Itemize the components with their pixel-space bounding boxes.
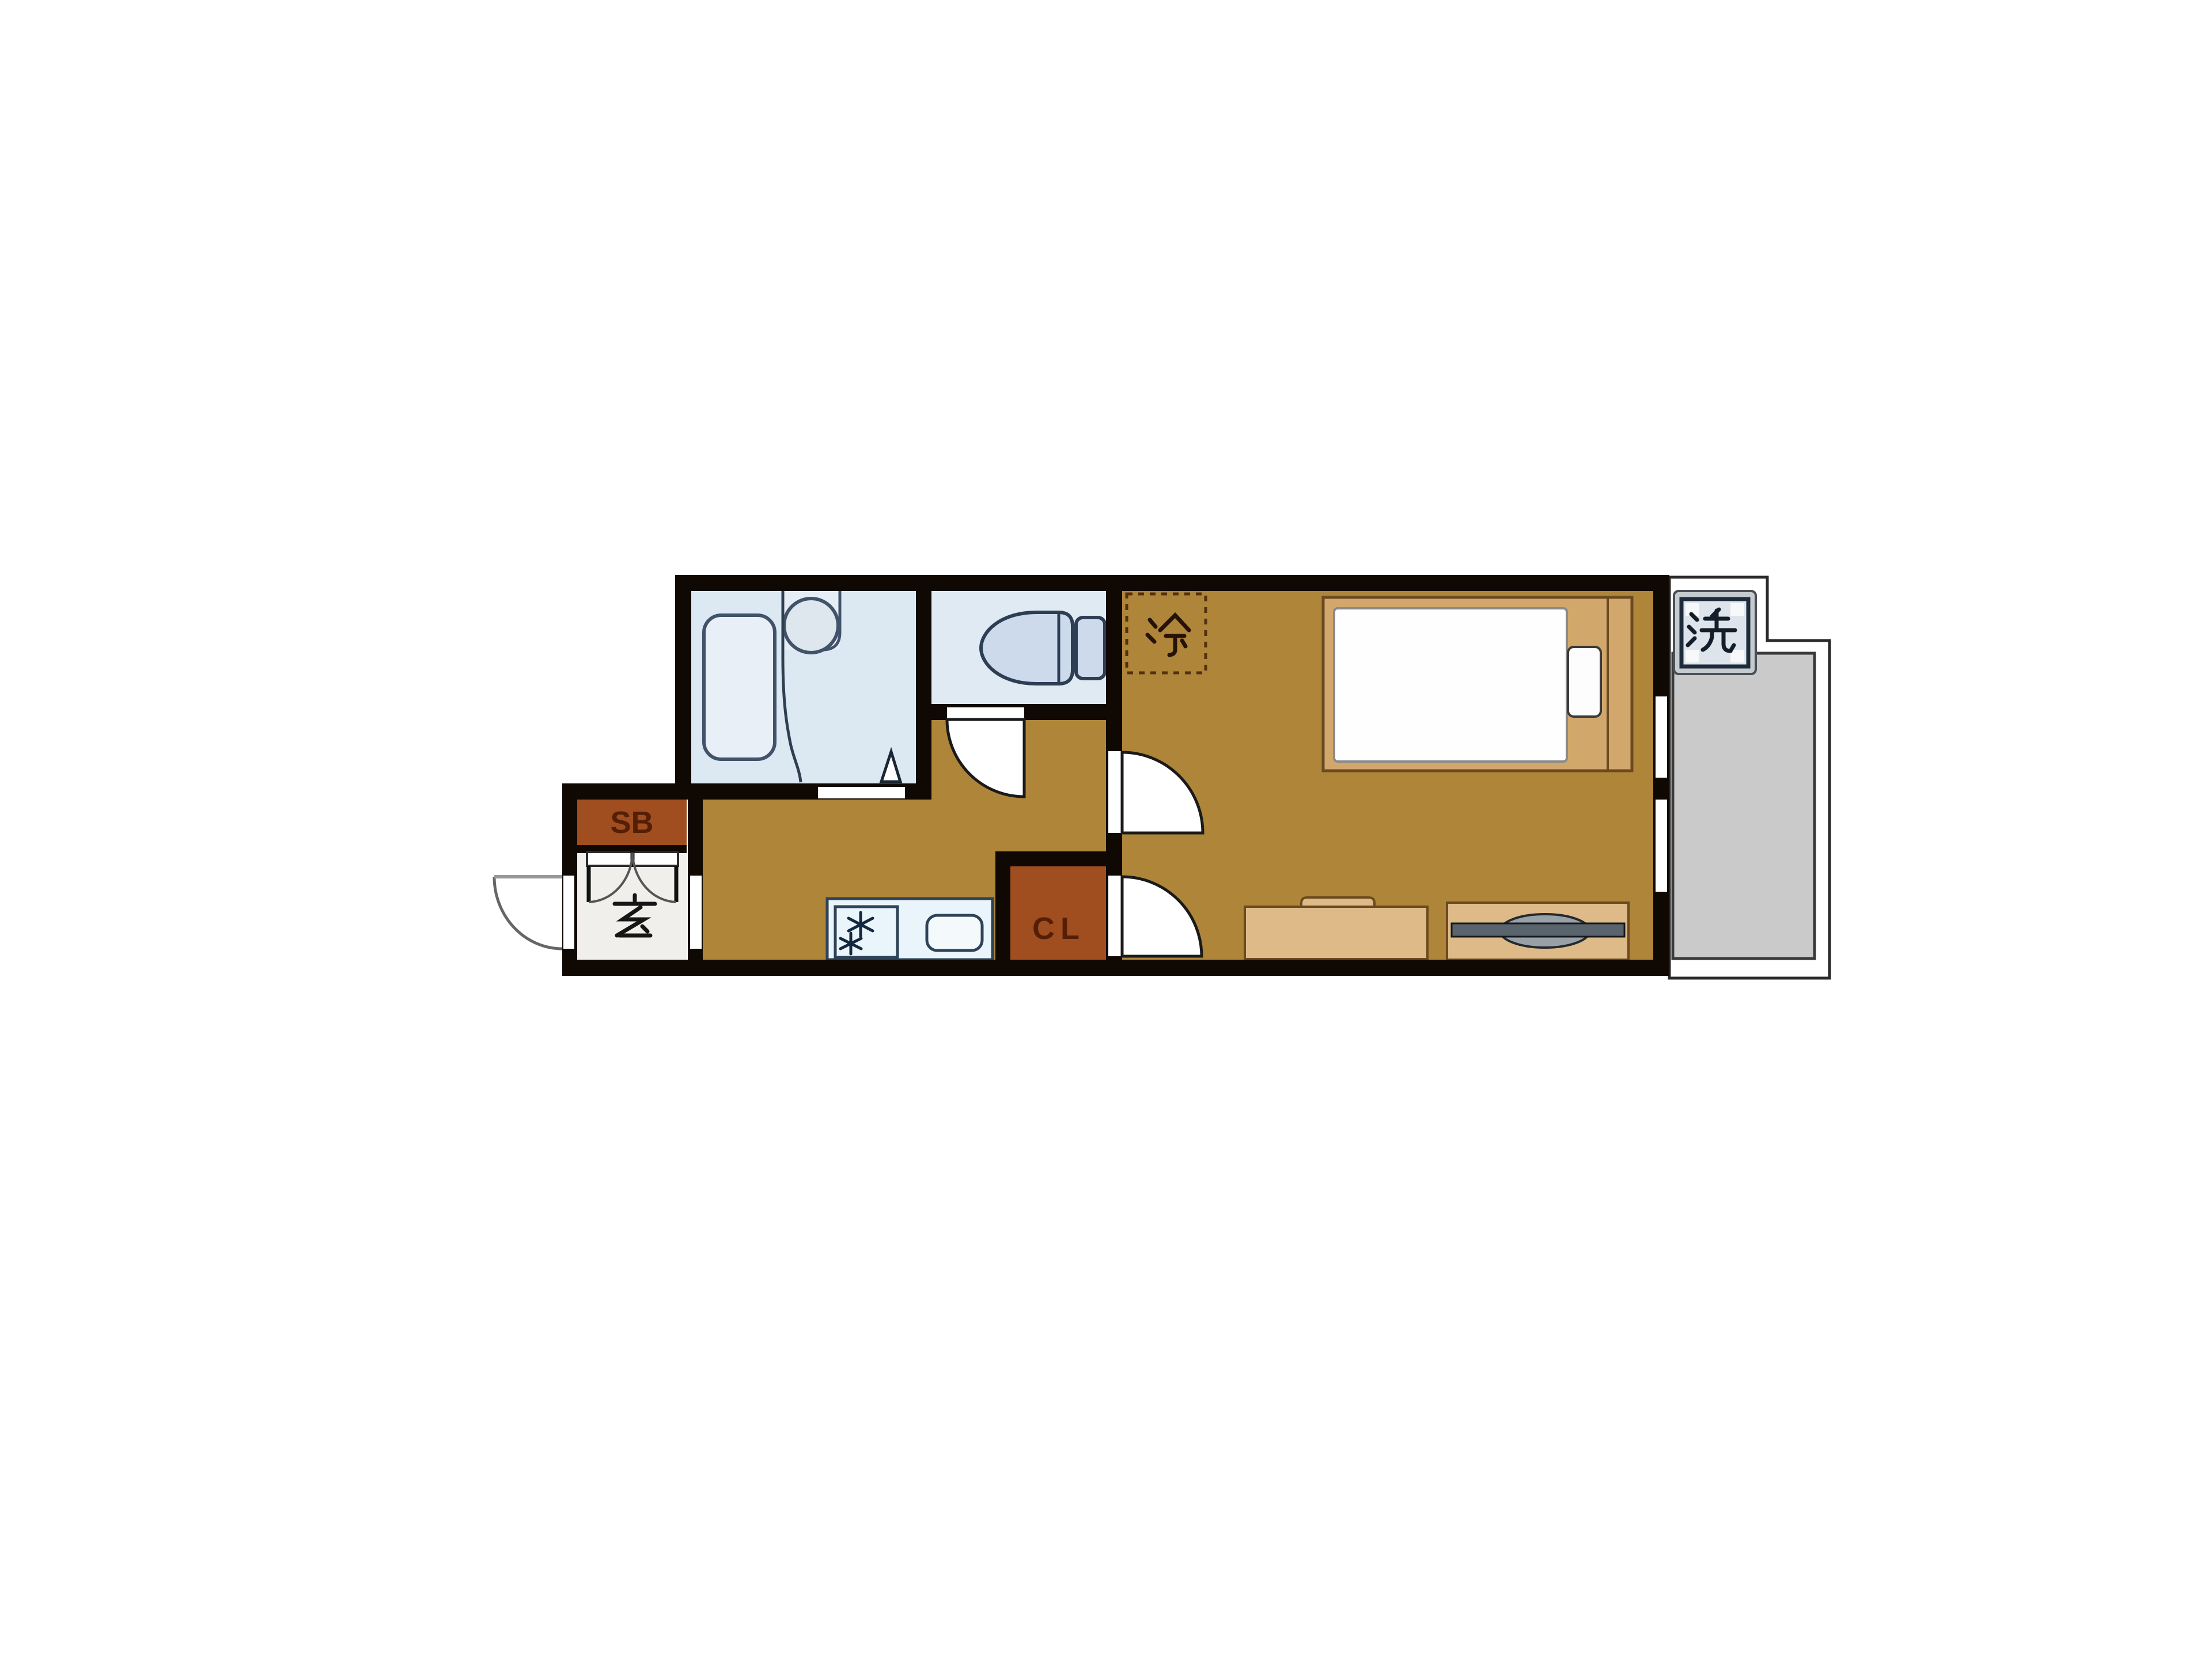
svg-text:CL: CL <box>1032 911 1085 946</box>
svg-text:SB: SB <box>610 805 653 840</box>
